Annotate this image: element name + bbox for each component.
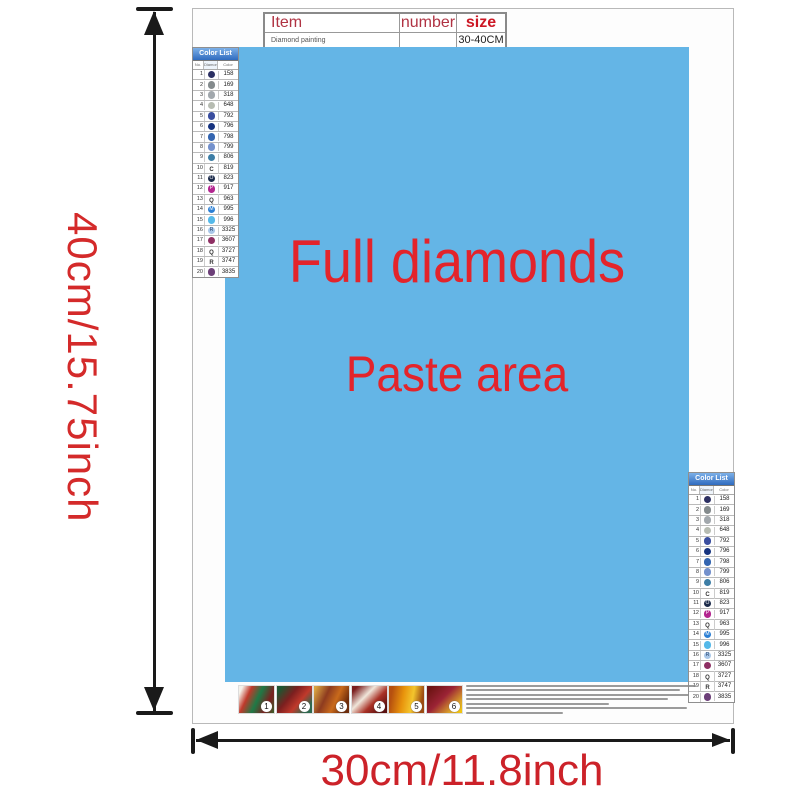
diamond-color-dot-icon bbox=[704, 537, 712, 545]
diamond-color-dot-icon bbox=[704, 506, 712, 514]
info-table-header-row: Item number size bbox=[265, 14, 505, 33]
row-number: 9 bbox=[193, 153, 205, 162]
col-color: Color bbox=[218, 61, 238, 69]
height-dimension-label: 40cm/15.75inch bbox=[58, 212, 106, 552]
step-number-badge: 2 bbox=[299, 701, 310, 712]
color-list-row: 16R3325 bbox=[689, 651, 734, 661]
diamond-color-dot-icon: M bbox=[704, 631, 712, 639]
color-list-row: 6796 bbox=[193, 122, 238, 132]
dmc-color-code: 318 bbox=[715, 516, 734, 525]
diamond-symbol-letter: Q bbox=[705, 675, 710, 681]
item-name-cell: Diamond painting bbox=[265, 33, 400, 47]
step-number-badge: 3 bbox=[336, 701, 347, 712]
color-list-right: Color List No. Diamond Color 11582169331… bbox=[688, 472, 735, 703]
color-list-row: 13Q963 bbox=[193, 195, 238, 205]
arrow-right-icon bbox=[712, 733, 730, 747]
row-number: 11 bbox=[193, 174, 205, 183]
dmc-color-code: 3747 bbox=[219, 257, 238, 266]
diamond-color-dot-icon bbox=[208, 71, 216, 79]
row-number: 4 bbox=[193, 101, 205, 110]
row-number: 17 bbox=[193, 236, 205, 245]
step-photo-6: 6 bbox=[426, 685, 463, 714]
instruction-text-line bbox=[466, 689, 680, 691]
header-number: number bbox=[400, 14, 457, 32]
dmc-color-code: 169 bbox=[715, 506, 734, 515]
diamond-color-dot-icon bbox=[704, 527, 712, 535]
step-number-badge: 5 bbox=[411, 701, 422, 712]
row-number: 8 bbox=[193, 143, 205, 152]
color-list-row: 11O823 bbox=[689, 599, 734, 609]
arrow-down-icon bbox=[144, 687, 164, 711]
row-number: 7 bbox=[689, 558, 701, 567]
dmc-color-code: 3727 bbox=[219, 247, 238, 256]
dmc-color-code: 996 bbox=[219, 216, 238, 225]
row-number: 12 bbox=[193, 184, 205, 193]
row-number: 12 bbox=[689, 609, 701, 618]
dmc-color-code: 917 bbox=[219, 184, 238, 193]
row-number: 1 bbox=[689, 495, 701, 504]
row-number: 3 bbox=[193, 91, 205, 100]
color-list-row: 3318 bbox=[689, 516, 734, 526]
color-list-row: 15996 bbox=[689, 640, 734, 650]
color-list-row: 7798 bbox=[689, 557, 734, 567]
diamond-color-dot-icon bbox=[704, 558, 712, 566]
dmc-color-code: 648 bbox=[219, 101, 238, 110]
color-list-row: 13Q963 bbox=[689, 620, 734, 630]
color-list-title: Color List bbox=[689, 473, 734, 486]
color-list-column-headers: No. Diamond Color bbox=[193, 61, 238, 70]
dmc-color-code: 3607 bbox=[715, 661, 734, 670]
instruction-text-line bbox=[466, 685, 696, 687]
dmc-color-code: 3727 bbox=[715, 672, 734, 681]
row-number: 15 bbox=[193, 216, 205, 225]
step-photo-1: 1 bbox=[238, 685, 275, 714]
row-number: 19 bbox=[193, 257, 205, 266]
diamond-color-dot-icon bbox=[208, 133, 216, 141]
diamond-symbol-letter: R bbox=[705, 685, 709, 691]
row-number: 6 bbox=[689, 547, 701, 556]
diamond-color-dot-icon bbox=[208, 268, 216, 276]
instruction-text-line bbox=[466, 712, 563, 714]
row-number: 3 bbox=[689, 516, 701, 525]
diamond-color-dot-icon bbox=[208, 154, 216, 162]
row-number: 5 bbox=[193, 112, 205, 121]
paste-area-title: Full diamonds bbox=[248, 227, 666, 296]
dmc-color-code: 819 bbox=[219, 164, 238, 173]
color-list-row: 2169 bbox=[689, 505, 734, 515]
diamond-color-dot-icon: R bbox=[208, 227, 216, 235]
diamond-color-dot-icon bbox=[208, 102, 216, 110]
color-list-row: 203835 bbox=[193, 267, 238, 276]
canvas-sheet: Item number size Diamond painting 30-40C… bbox=[192, 8, 734, 724]
dmc-color-code: 792 bbox=[715, 537, 734, 546]
color-list-rows: 11582169331846485792679677988799980610C8… bbox=[689, 495, 734, 702]
color-list-row: 2169 bbox=[193, 80, 238, 90]
color-list-row: 19R3747 bbox=[193, 257, 238, 267]
dmc-color-code: 3325 bbox=[219, 226, 238, 235]
col-no: No. bbox=[193, 61, 204, 69]
color-list-row: 1158 bbox=[689, 495, 734, 505]
color-list-row: 16R3325 bbox=[193, 226, 238, 236]
diamond-color-dot-icon: P bbox=[208, 185, 216, 193]
dmc-color-code: 963 bbox=[715, 620, 734, 629]
instruction-step-photos: 123456 bbox=[238, 685, 463, 714]
diamond-color-dot-icon bbox=[208, 123, 216, 131]
item-size-cell: 30-40CM bbox=[457, 33, 505, 47]
row-number: 18 bbox=[689, 672, 701, 681]
header-size: size bbox=[457, 14, 505, 32]
row-number: 13 bbox=[193, 195, 205, 204]
dmc-color-code: 798 bbox=[219, 133, 238, 142]
step-number-badge: 4 bbox=[374, 701, 385, 712]
diamond-symbol-letter: C bbox=[705, 592, 709, 598]
color-list-column-headers: No. Diamond Color bbox=[689, 486, 734, 495]
step-photo-2: 2 bbox=[276, 685, 313, 714]
diamond-symbol-letter: R bbox=[209, 260, 213, 266]
row-number: 14 bbox=[193, 205, 205, 214]
row-number: 10 bbox=[689, 589, 701, 598]
diamond-color-dot-icon: M bbox=[208, 206, 216, 214]
vertical-arrow-bottom-cap bbox=[136, 711, 173, 715]
row-number: 4 bbox=[689, 526, 701, 535]
col-color: Color bbox=[714, 486, 734, 494]
color-list-row: 5792 bbox=[689, 537, 734, 547]
color-list-row: 14M995 bbox=[193, 205, 238, 215]
col-diamond: Diamond bbox=[204, 61, 218, 69]
vertical-dimension-line bbox=[153, 12, 156, 712]
diamond-color-dot-icon bbox=[208, 91, 216, 99]
dmc-color-code: 799 bbox=[715, 568, 734, 577]
diamond-color-dot-icon bbox=[704, 496, 712, 504]
dmc-color-code: 806 bbox=[715, 578, 734, 587]
row-number: 14 bbox=[689, 630, 701, 639]
dmc-color-code: 995 bbox=[715, 630, 734, 639]
diamond-color-dot-icon bbox=[704, 579, 712, 587]
dmc-color-code: 819 bbox=[715, 589, 734, 598]
color-list-row: 7798 bbox=[193, 132, 238, 142]
instruction-text-line bbox=[466, 698, 668, 700]
color-list-row: 8799 bbox=[193, 143, 238, 153]
diamond-color-dot-icon bbox=[208, 112, 216, 120]
diamond-color-dot-icon bbox=[704, 693, 712, 701]
diamond-color-dot-icon bbox=[208, 216, 216, 224]
row-number: 1 bbox=[193, 70, 205, 79]
row-number: 13 bbox=[689, 620, 701, 629]
dmc-color-code: 3607 bbox=[219, 236, 238, 245]
diamond-color-dot-icon bbox=[704, 568, 712, 576]
dmc-color-code: 648 bbox=[715, 526, 734, 535]
diamond-color-dot-icon bbox=[704, 548, 712, 556]
color-list-row: 4648 bbox=[193, 101, 238, 111]
dmc-color-code: 963 bbox=[219, 195, 238, 204]
horizontal-dimension-line bbox=[196, 739, 730, 742]
step-number-badge: 1 bbox=[261, 701, 272, 712]
diamond-color-dot-icon: P bbox=[704, 610, 712, 618]
dmc-color-code: 996 bbox=[715, 641, 734, 650]
diamond-color-dot-icon bbox=[704, 516, 712, 524]
paste-area-subtitle: Paste area bbox=[244, 345, 671, 403]
step-number-badge: 6 bbox=[449, 701, 460, 712]
color-list-row: 14M995 bbox=[689, 630, 734, 640]
dmc-color-code: 806 bbox=[219, 153, 238, 162]
instruction-text-line bbox=[466, 694, 689, 696]
color-list-row: 8799 bbox=[689, 568, 734, 578]
dmc-color-code: 823 bbox=[219, 174, 238, 183]
info-table-value-row: Diamond painting 30-40CM bbox=[265, 33, 505, 47]
dmc-color-code: 3835 bbox=[715, 693, 734, 702]
dmc-color-code: 796 bbox=[715, 547, 734, 556]
diamond-symbol-letter: Q bbox=[705, 623, 710, 629]
diamond-color-dot-icon: O bbox=[208, 175, 216, 183]
color-list-row: 6796 bbox=[689, 547, 734, 557]
instruction-text-line bbox=[466, 707, 687, 709]
diamond-color-dot-icon bbox=[208, 143, 216, 151]
color-list-rows: 11582169331846485792679677988799980610C8… bbox=[193, 70, 238, 277]
dmc-color-code: 796 bbox=[219, 122, 238, 131]
row-number: 11 bbox=[689, 599, 701, 608]
step-photo-4: 4 bbox=[351, 685, 388, 714]
row-number: 7 bbox=[193, 133, 205, 142]
row-number: 6 bbox=[193, 122, 205, 131]
dmc-color-code: 3835 bbox=[219, 268, 238, 277]
diamond-color-dot-icon bbox=[208, 237, 216, 245]
diamond-color-dot-icon bbox=[704, 662, 712, 670]
step-photo-5: 5 bbox=[388, 685, 425, 714]
header-item: Item bbox=[265, 14, 400, 32]
paste-area: Full diamonds Paste area bbox=[225, 47, 689, 682]
row-number: 17 bbox=[689, 661, 701, 670]
dmc-color-code: 169 bbox=[219, 81, 238, 90]
col-diamond: Diamond bbox=[700, 486, 714, 494]
dmc-color-code: 3325 bbox=[715, 651, 734, 660]
dmc-color-code: 799 bbox=[219, 143, 238, 152]
diamond-color-dot-icon: O bbox=[704, 600, 712, 608]
dmc-color-code: 798 bbox=[715, 558, 734, 567]
dmc-color-code: 3747 bbox=[715, 682, 734, 691]
dmc-color-code: 158 bbox=[219, 70, 238, 79]
row-number: 8 bbox=[689, 568, 701, 577]
color-list-row: 3318 bbox=[193, 91, 238, 101]
diamond-color-dot-icon bbox=[704, 641, 712, 649]
dmc-color-code: 995 bbox=[219, 205, 238, 214]
row-number: 5 bbox=[689, 537, 701, 546]
color-list-left: Color List No. Diamond Color 11582169331… bbox=[192, 47, 239, 278]
row-number: 2 bbox=[193, 81, 205, 90]
color-list-row: 10C819 bbox=[193, 164, 238, 174]
color-list-row: 1158 bbox=[193, 70, 238, 80]
row-number: 9 bbox=[689, 578, 701, 587]
diamond-symbol-letter: C bbox=[209, 167, 213, 173]
diamond-symbol-letter: Q bbox=[209, 198, 214, 204]
dmc-color-code: 318 bbox=[219, 91, 238, 100]
color-list-row: 10C819 bbox=[689, 589, 734, 599]
product-size-chart-image: 40cm/15.75inch Item number size Diamond … bbox=[0, 0, 800, 800]
dmc-color-code: 917 bbox=[715, 609, 734, 618]
diamond-symbol-letter: Q bbox=[209, 250, 214, 256]
dmc-color-code: 792 bbox=[219, 112, 238, 121]
color-list-row: 11O823 bbox=[193, 174, 238, 184]
row-number: 16 bbox=[193, 226, 205, 235]
dmc-color-code: 158 bbox=[715, 495, 734, 504]
diamond-color-dot-icon: R bbox=[704, 652, 712, 660]
item-number-cell bbox=[400, 33, 457, 47]
row-number: 20 bbox=[193, 268, 205, 277]
row-number: 10 bbox=[193, 164, 205, 173]
instruction-text-line bbox=[466, 703, 609, 705]
item-info-table: Item number size Diamond painting 30-40C… bbox=[263, 12, 507, 49]
dmc-color-code: 823 bbox=[715, 599, 734, 608]
instructions-text-block bbox=[466, 685, 696, 719]
color-list-row: 4648 bbox=[689, 526, 734, 536]
color-list-row: 5792 bbox=[193, 112, 238, 122]
col-no: No. bbox=[689, 486, 700, 494]
diamond-color-dot-icon bbox=[208, 81, 216, 89]
width-dimension-label: 30cm/11.8inch bbox=[192, 746, 732, 796]
step-photo-3: 3 bbox=[313, 685, 350, 714]
color-list-row: 15996 bbox=[193, 215, 238, 225]
color-list-title: Color List bbox=[193, 48, 238, 61]
row-number: 18 bbox=[193, 247, 205, 256]
row-number: 16 bbox=[689, 651, 701, 660]
row-number: 2 bbox=[689, 506, 701, 515]
row-number: 15 bbox=[689, 641, 701, 650]
